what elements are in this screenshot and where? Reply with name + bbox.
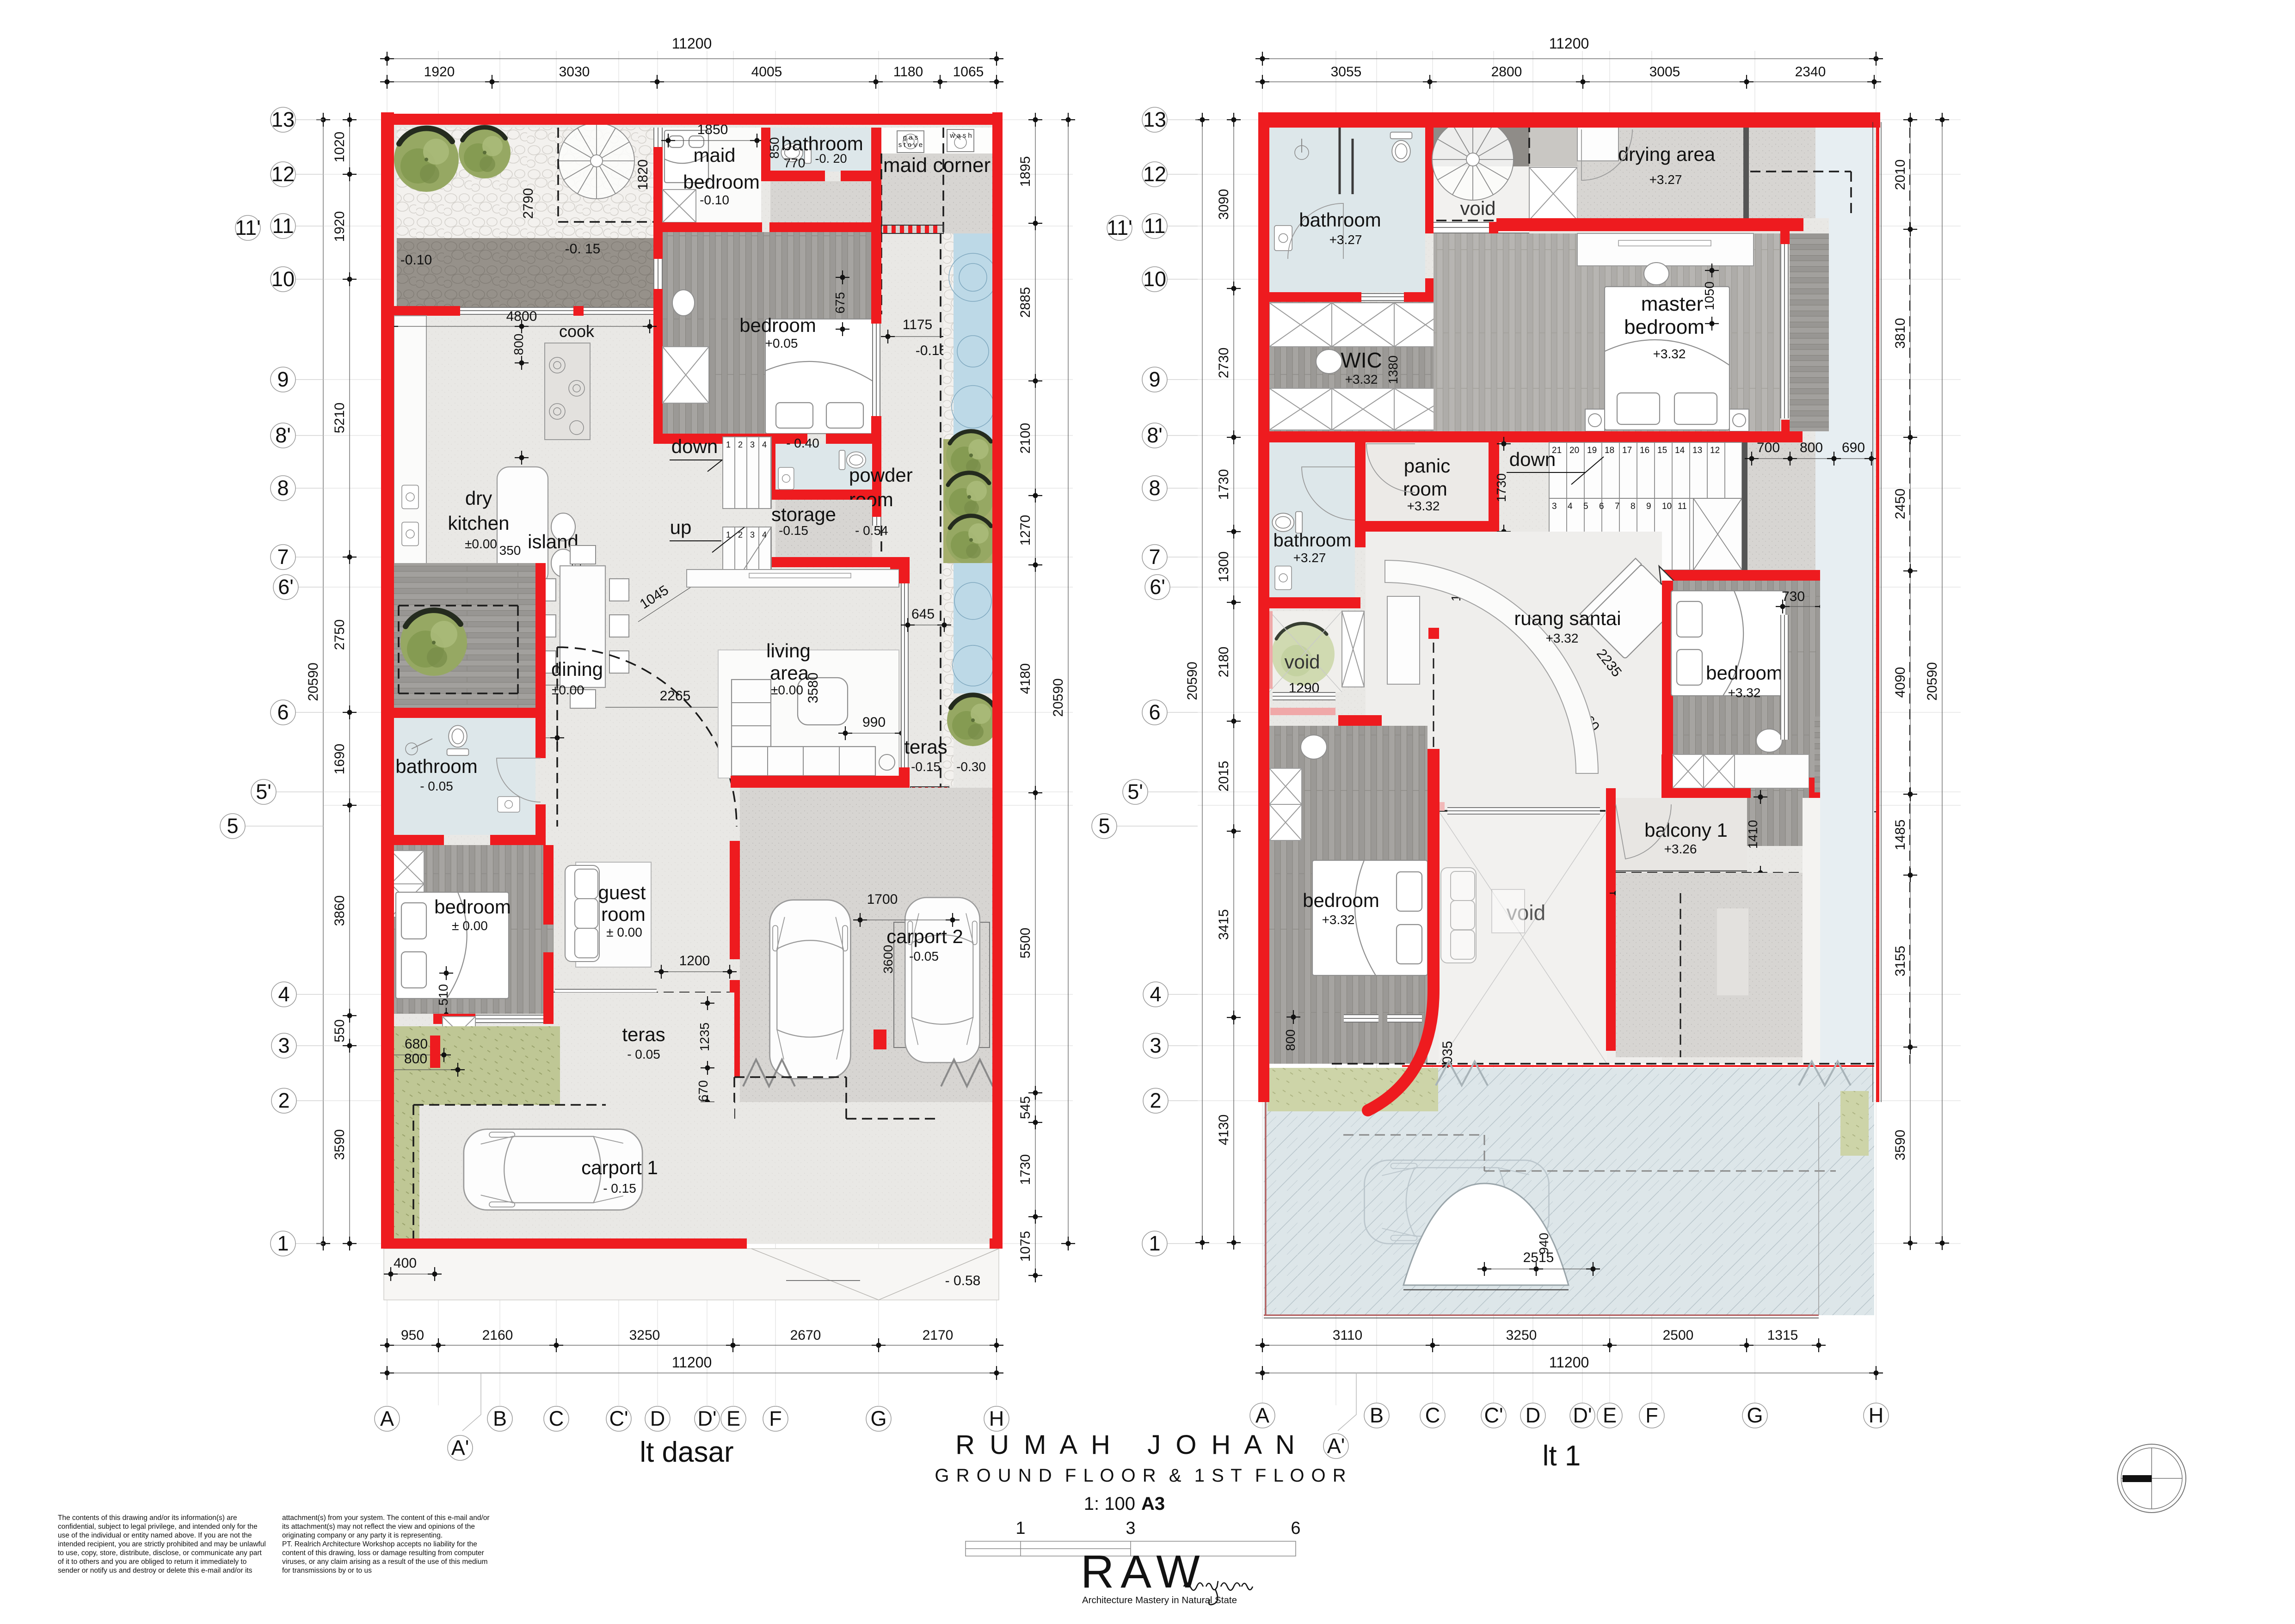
svg-text:1380: 1380	[1386, 355, 1400, 384]
svg-text:3590: 3590	[1893, 1130, 1908, 1161]
svg-text:2: 2	[278, 1089, 289, 1112]
svg-text:3030: 3030	[559, 64, 590, 80]
svg-text:C': C'	[1484, 1403, 1503, 1427]
svg-text:F: F	[769, 1407, 782, 1430]
svg-text:down: down	[671, 435, 718, 457]
svg-text:800: 800	[404, 1051, 427, 1066]
svg-text:+3.32: +3.32	[1407, 499, 1440, 513]
svg-text:850: 850	[767, 137, 781, 159]
svg-text:maid corner: maid corner	[883, 154, 991, 177]
svg-text:4: 4	[1150, 982, 1161, 1006]
svg-text:1700: 1700	[867, 892, 898, 907]
svg-text:bathroom: bathroom	[1274, 530, 1352, 551]
svg-text:1050: 1050	[1702, 282, 1717, 310]
svg-text:- 0.05: - 0.05	[420, 779, 453, 793]
svg-text:5: 5	[1098, 814, 1110, 838]
svg-text:5500: 5500	[1018, 928, 1033, 959]
svg-text:1065: 1065	[953, 64, 984, 80]
svg-text:690: 690	[1842, 440, 1865, 455]
svg-text:powder: powder	[849, 464, 913, 486]
svg-text:350: 350	[499, 543, 521, 558]
svg-text:+0.05: +0.05	[765, 336, 798, 350]
svg-text:4130: 4130	[1216, 1115, 1231, 1146]
svg-text:2500: 2500	[1663, 1328, 1694, 1343]
svg-text:lt dasar: lt dasar	[640, 1436, 733, 1468]
svg-text:3155: 3155	[1893, 946, 1908, 977]
svg-text:- 0.05: - 0.05	[627, 1047, 660, 1061]
svg-text:13: 13	[1692, 446, 1702, 455]
svg-text:carport 1: carport 1	[581, 1157, 658, 1178]
svg-text:4090: 4090	[1893, 667, 1908, 698]
svg-text:950: 950	[401, 1328, 424, 1343]
svg-text:2750: 2750	[332, 619, 347, 650]
svg-text:A': A'	[1327, 1434, 1345, 1458]
svg-text:11: 11	[272, 214, 294, 238]
svg-text:2015: 2015	[1216, 761, 1231, 792]
svg-text:2885: 2885	[1018, 287, 1033, 318]
svg-text:5210: 5210	[332, 403, 347, 434]
svg-text:PT. Realrich Architecture Work: PT. Realrich Architecture Workshop accep…	[282, 1540, 477, 1548]
svg-text:14: 14	[1675, 446, 1685, 455]
svg-text:± 0.00: ± 0.00	[606, 925, 642, 939]
svg-text:2515: 2515	[1523, 1250, 1554, 1265]
svg-text:550: 550	[332, 1019, 347, 1042]
svg-text:730: 730	[1782, 589, 1805, 604]
svg-text:H: H	[989, 1407, 1004, 1430]
svg-text:770: 770	[784, 156, 806, 170]
svg-text:2670: 2670	[790, 1328, 821, 1343]
svg-text:3250: 3250	[1506, 1328, 1537, 1343]
svg-text:-0.15: -0.15	[916, 343, 947, 358]
svg-text:1485: 1485	[1893, 820, 1908, 851]
svg-text:RAW: RAW	[1081, 1546, 1206, 1598]
svg-text:A: A	[1255, 1403, 1269, 1427]
svg-text:8': 8'	[275, 423, 291, 447]
svg-text:1730: 1730	[1494, 473, 1508, 502]
svg-text:800: 800	[511, 334, 526, 355]
svg-text:5': 5'	[256, 780, 271, 803]
svg-text:panic: panic	[1404, 455, 1450, 477]
svg-text:sender or notify us and destro: sender or notify us and destroy or delet…	[58, 1567, 252, 1575]
svg-text:teras: teras	[904, 736, 947, 758]
svg-text:teras: teras	[622, 1023, 665, 1045]
svg-text:4: 4	[762, 530, 767, 539]
svg-text:E: E	[726, 1407, 740, 1430]
svg-text:E: E	[1603, 1403, 1617, 1427]
svg-text:5: 5	[1583, 502, 1588, 511]
svg-text:16: 16	[1640, 446, 1649, 455]
svg-text:6: 6	[1149, 700, 1160, 724]
svg-text:11200: 11200	[1549, 35, 1589, 52]
svg-text:2170: 2170	[923, 1328, 954, 1343]
svg-text:w a s h: w a s h	[949, 132, 972, 140]
svg-text:7: 7	[1615, 502, 1620, 511]
svg-text:down: down	[1509, 448, 1556, 470]
svg-text:D: D	[1526, 1403, 1541, 1427]
svg-text:9: 9	[1646, 502, 1651, 511]
svg-text:1020: 1020	[332, 132, 347, 163]
svg-text:20590: 20590	[1051, 678, 1066, 717]
svg-text:+3.32: +3.32	[1322, 913, 1355, 927]
svg-text:for transmissions by or to us: for transmissions by or to us	[282, 1567, 372, 1575]
svg-text:20590: 20590	[1925, 662, 1940, 700]
svg-text:B: B	[1370, 1403, 1384, 1427]
svg-text:3: 3	[1552, 502, 1557, 511]
svg-text:6: 6	[277, 700, 289, 724]
svg-text:9: 9	[1149, 368, 1160, 391]
svg-text:void: void	[1460, 197, 1495, 219]
svg-text:1075: 1075	[1018, 1231, 1033, 1262]
svg-text:3: 3	[1126, 1519, 1135, 1538]
svg-text:2010: 2010	[1893, 159, 1908, 190]
svg-text:D: D	[650, 1407, 665, 1430]
svg-text:- 0.54: - 0.54	[855, 523, 888, 538]
svg-text:use of the individual or entit: use of the individual or entity named ab…	[58, 1532, 252, 1539]
svg-text:D': D'	[1573, 1403, 1592, 1427]
svg-text:8: 8	[1630, 502, 1636, 511]
svg-text:its attachment(s) may not refl: its attachment(s) may not reflect the vi…	[282, 1523, 475, 1531]
svg-text:2160: 2160	[482, 1328, 513, 1343]
svg-text:9: 9	[277, 368, 289, 391]
svg-text:645: 645	[911, 607, 935, 622]
svg-text:17: 17	[1622, 446, 1632, 455]
svg-text:11: 11	[1144, 214, 1166, 238]
svg-text:to use, copy, store, distribut: to use, copy, store, distribute, disclos…	[58, 1549, 262, 1557]
svg-text:2: 2	[738, 440, 743, 449]
svg-text:+3.27: +3.27	[1329, 233, 1362, 247]
svg-text:1180: 1180	[893, 64, 923, 80]
svg-text:1200: 1200	[679, 953, 710, 968]
svg-text:confidential, subject to legal: confidential, subject to legal privilege…	[58, 1523, 258, 1531]
svg-text:- 0.58: - 0.58	[945, 1273, 981, 1288]
svg-text:+3.32: +3.32	[1653, 347, 1686, 361]
svg-text:bathroom: bathroom	[395, 755, 477, 777]
svg-text:+3.32: +3.32	[1728, 686, 1761, 700]
svg-text:13: 13	[1143, 108, 1166, 131]
svg-text:bathroom: bathroom	[781, 133, 863, 154]
svg-text:+3.27: +3.27	[1293, 551, 1326, 565]
svg-text:A': A'	[451, 1436, 469, 1459]
svg-text:+3.32: +3.32	[1345, 372, 1378, 386]
svg-text:11200: 11200	[672, 35, 712, 52]
svg-text:kitchen: kitchen	[448, 512, 509, 534]
svg-text:11200: 11200	[1549, 1354, 1589, 1371]
svg-text:bedroom: bedroom	[1624, 316, 1704, 338]
svg-text:viruses, or any claim arising: viruses, or any claim arising as a resul…	[282, 1558, 488, 1566]
svg-text:8: 8	[277, 476, 289, 500]
svg-text:dry: dry	[465, 487, 492, 509]
svg-text:cook: cook	[559, 322, 595, 341]
svg-text:4: 4	[762, 440, 767, 449]
svg-text:3090: 3090	[1216, 189, 1231, 220]
svg-text:dining: dining	[551, 658, 603, 680]
svg-text:12: 12	[271, 162, 295, 186]
svg-text:bedroom: bedroom	[739, 314, 816, 336]
svg-text:-0.30: -0.30	[956, 760, 986, 774]
svg-text:20590: 20590	[306, 662, 321, 701]
svg-text:±0.00: ±0.00	[771, 683, 803, 697]
svg-text:12: 12	[1143, 162, 1166, 186]
svg-text:1315: 1315	[1767, 1328, 1798, 1343]
svg-text:- 0.15: - 0.15	[603, 1181, 636, 1195]
svg-text:drying area: drying area	[1618, 143, 1716, 165]
svg-text:3055: 3055	[1331, 64, 1362, 80]
svg-text:800: 800	[1800, 440, 1823, 455]
svg-text:ruang santai: ruang santai	[1514, 607, 1621, 629]
svg-text:545: 545	[1018, 1096, 1033, 1119]
svg-text:master: master	[1641, 293, 1703, 315]
svg-text:1920: 1920	[424, 64, 455, 80]
svg-text:5': 5'	[1127, 780, 1143, 803]
svg-text:2340: 2340	[1795, 64, 1826, 80]
svg-text:1: 1	[1149, 1232, 1160, 1255]
svg-text:3580: 3580	[806, 673, 821, 704]
svg-text:8: 8	[1149, 476, 1160, 500]
svg-text:of it to others and you are ob: of it to others and you are obliged to r…	[58, 1558, 246, 1566]
svg-text:C: C	[1425, 1403, 1440, 1427]
svg-text:guest: guest	[598, 882, 646, 903]
svg-text:3250: 3250	[629, 1328, 660, 1343]
svg-text:±0.00: ±0.00	[465, 537, 497, 551]
svg-text:± 0.00: ± 0.00	[452, 919, 488, 933]
svg-text:-0.10: -0.10	[400, 252, 432, 268]
svg-text:The contents of this drawing a: The contents of this drawing and/or its …	[58, 1514, 237, 1522]
svg-text:up: up	[670, 516, 692, 538]
svg-text:G R O U N D F L O O R & 1 S: G R O U N D F L O O R & 1 S T F L O O R	[935, 1465, 1347, 1486]
svg-text:2180: 2180	[1216, 647, 1231, 678]
svg-text:4005: 4005	[751, 64, 782, 80]
svg-text:3: 3	[750, 530, 755, 539]
svg-text:7: 7	[277, 545, 289, 569]
svg-text:storage: storage	[771, 503, 836, 525]
svg-text:2035: 2035	[1440, 1041, 1455, 1072]
svg-text:3110: 3110	[1333, 1328, 1363, 1343]
svg-text:originating company or any par: originating company or any party it is r…	[282, 1532, 443, 1539]
svg-text:10: 10	[1143, 267, 1166, 291]
svg-text:7: 7	[1149, 545, 1160, 569]
svg-text:3: 3	[750, 440, 755, 449]
svg-text:A: A	[380, 1407, 394, 1430]
svg-text:2730: 2730	[1216, 348, 1231, 379]
svg-text:990: 990	[862, 715, 886, 730]
svg-text:content of this drawing, loss: content of this drawing, loss or damage …	[282, 1549, 484, 1557]
svg-text:1895: 1895	[1018, 156, 1033, 187]
svg-text:2790: 2790	[521, 188, 536, 219]
svg-text:R U M A H J O H A N: R U M A H J O H A N	[955, 1430, 1298, 1460]
svg-text:20590: 20590	[1185, 662, 1200, 700]
svg-text:1730: 1730	[1216, 469, 1231, 500]
svg-text:3415: 3415	[1216, 909, 1231, 940]
svg-text:12: 12	[1710, 446, 1720, 455]
svg-text:2: 2	[1150, 1089, 1161, 1112]
svg-text:5: 5	[227, 814, 238, 838]
svg-text:6: 6	[1599, 502, 1604, 511]
svg-text:15: 15	[1657, 446, 1667, 455]
svg-text:4: 4	[1568, 502, 1573, 511]
svg-text:11: 11	[1678, 502, 1687, 511]
svg-text:680: 680	[405, 1036, 428, 1052]
svg-text:bathroom: bathroom	[1299, 209, 1381, 231]
svg-text:-0.15: -0.15	[911, 760, 941, 774]
svg-text:- 0.40: - 0.40	[786, 436, 819, 450]
svg-text:1410: 1410	[1746, 820, 1760, 849]
svg-text:D': D'	[697, 1407, 716, 1430]
svg-text:intended recipient, you are st: intended recipient, you are strictly pro…	[58, 1540, 266, 1548]
svg-text:11': 11'	[1107, 216, 1132, 239]
svg-text:18: 18	[1605, 446, 1614, 455]
svg-text:3860: 3860	[332, 895, 347, 926]
svg-text:2100: 2100	[1018, 423, 1033, 454]
svg-text:8': 8'	[1147, 423, 1163, 447]
svg-text:3: 3	[1150, 1034, 1161, 1057]
svg-text:bedroom: bedroom	[1303, 889, 1379, 911]
svg-text:bedroom: bedroom	[1706, 662, 1783, 684]
svg-text:room: room	[1403, 478, 1447, 500]
svg-text:-0.15: -0.15	[779, 523, 808, 538]
svg-text:4: 4	[278, 982, 289, 1006]
svg-text:C': C'	[609, 1407, 628, 1430]
svg-text:510: 510	[436, 984, 450, 1006]
svg-text:bedroom: bedroom	[434, 896, 511, 918]
svg-text:g a s: g a s	[903, 134, 918, 141]
svg-text:room: room	[601, 903, 646, 925]
svg-text:1175: 1175	[903, 317, 933, 332]
svg-text:WIC: WIC	[1341, 348, 1382, 372]
svg-text:1: 1	[277, 1232, 289, 1255]
svg-text:G: G	[1747, 1403, 1763, 1427]
svg-text:-0. 15: -0. 15	[565, 241, 601, 257]
svg-text:20: 20	[1569, 446, 1579, 455]
svg-text:H: H	[1869, 1403, 1884, 1427]
svg-text:1920: 1920	[332, 211, 347, 242]
svg-text:+3.27: +3.27	[1649, 172, 1682, 187]
svg-text:void: void	[1284, 651, 1320, 673]
svg-text:1690: 1690	[332, 744, 347, 775]
svg-text:800: 800	[1283, 1030, 1298, 1051]
svg-text:living: living	[766, 640, 811, 662]
svg-text:3600: 3600	[881, 945, 895, 974]
svg-text:+3.26: +3.26	[1664, 842, 1697, 856]
svg-text:400: 400	[394, 1256, 417, 1271]
svg-text:3590: 3590	[332, 1129, 347, 1160]
svg-text:1300: 1300	[1216, 552, 1231, 582]
svg-text:s t o v e: s t o v e	[898, 141, 923, 149]
svg-text:11200: 11200	[672, 1354, 712, 1371]
svg-text:11': 11'	[235, 216, 260, 239]
svg-text:700: 700	[1757, 440, 1780, 455]
svg-text:670: 670	[696, 1080, 710, 1102]
svg-text:maid: maid	[693, 144, 735, 166]
svg-text:G: G	[870, 1407, 886, 1430]
svg-text:-0.10: -0.10	[700, 193, 729, 207]
svg-text:19: 19	[1587, 446, 1597, 455]
svg-text:3810: 3810	[1893, 318, 1908, 349]
svg-text:A3: A3	[1141, 1494, 1165, 1514]
svg-text:6': 6'	[278, 575, 294, 599]
svg-text:1: 100: 1: 100	[1084, 1494, 1135, 1514]
svg-text:-0.05: -0.05	[909, 949, 939, 963]
svg-text:6': 6'	[1150, 575, 1165, 599]
svg-text:1270: 1270	[1018, 515, 1033, 546]
svg-text:1235: 1235	[697, 1023, 712, 1051]
svg-text:2265: 2265	[660, 688, 691, 704]
svg-text:lt 1: lt 1	[1543, 1440, 1581, 1472]
svg-text:3005: 3005	[1649, 64, 1680, 80]
svg-text:675: 675	[833, 292, 847, 314]
svg-text:1730: 1730	[1018, 1154, 1033, 1185]
svg-text:6: 6	[1291, 1519, 1300, 1538]
svg-text:F: F	[1645, 1403, 1658, 1427]
svg-text:bedroom: bedroom	[683, 171, 760, 193]
svg-text:1820: 1820	[635, 159, 651, 190]
svg-text:+3.32: +3.32	[1546, 631, 1579, 645]
svg-text:C: C	[549, 1407, 564, 1430]
svg-text:carport 2: carport 2	[886, 925, 963, 947]
svg-text:B: B	[493, 1407, 507, 1430]
svg-text:2450: 2450	[1893, 489, 1908, 520]
svg-text:10: 10	[1662, 502, 1672, 511]
svg-text:area: area	[770, 662, 809, 684]
svg-text:3: 3	[278, 1034, 289, 1057]
svg-text:attachment(s) from your system: attachment(s) from your system. The cont…	[282, 1514, 490, 1522]
svg-text:4180: 4180	[1018, 663, 1033, 694]
svg-text:1: 1	[726, 440, 731, 449]
svg-text:1: 1	[1015, 1519, 1025, 1538]
svg-text:2800: 2800	[1491, 64, 1522, 80]
svg-text:13: 13	[271, 108, 295, 131]
svg-text:balcony 1: balcony 1	[1644, 819, 1728, 841]
svg-text:10: 10	[271, 267, 295, 291]
svg-text:Architecture Mastery in Natura: Architecture Mastery in Natural State	[1082, 1595, 1237, 1606]
svg-text:-0. 20: -0. 20	[815, 152, 847, 165]
